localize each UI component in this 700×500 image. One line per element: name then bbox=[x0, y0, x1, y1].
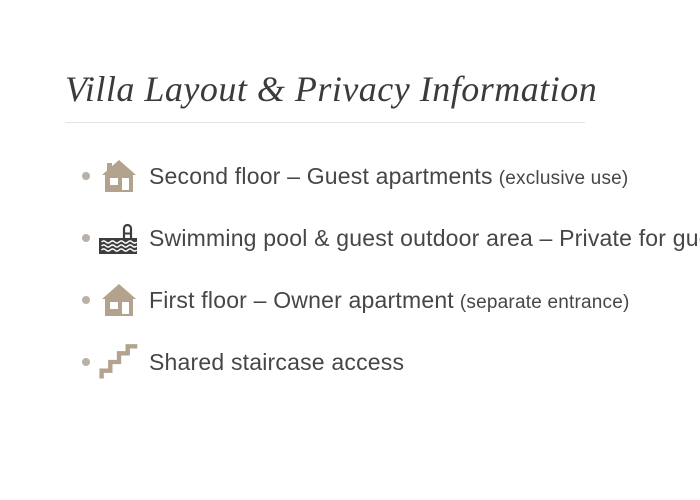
title-divider bbox=[65, 122, 585, 123]
list-item-text: Swimming pool & guest outdoor area – Pri… bbox=[149, 225, 700, 252]
page-title: Villa Layout & Privacy Information bbox=[65, 68, 585, 110]
list-item-note: (separate entrance) bbox=[460, 292, 630, 313]
villa-info-slide: Villa Layout & Privacy Information Secon… bbox=[0, 0, 700, 500]
bullet-dot bbox=[82, 358, 90, 366]
stairs-icon bbox=[99, 342, 139, 382]
list-item-note: (exclusive use) bbox=[499, 168, 629, 189]
bullet-dot bbox=[82, 234, 90, 242]
list-item-text: Second floor – Guest apartments(exclusiv… bbox=[149, 163, 628, 190]
list-item-text: Shared staircase access bbox=[149, 349, 404, 376]
list-item: Shared staircase access bbox=[82, 331, 642, 393]
pool-icon bbox=[99, 218, 139, 258]
list-item: Second floor – Guest apartments(exclusiv… bbox=[82, 145, 642, 207]
list-item: First floor – Owner apartment(separate e… bbox=[82, 269, 642, 331]
house-icon bbox=[99, 156, 139, 196]
bullet-dot bbox=[82, 296, 90, 304]
list-item-text: First floor – Owner apartment(separate e… bbox=[149, 287, 630, 314]
house-icon bbox=[99, 280, 139, 320]
bullet-dot bbox=[82, 172, 90, 180]
list-item: Swimming pool & guest outdoor area – Pri… bbox=[82, 207, 642, 269]
info-list: Second floor – Guest apartments(exclusiv… bbox=[82, 145, 642, 393]
